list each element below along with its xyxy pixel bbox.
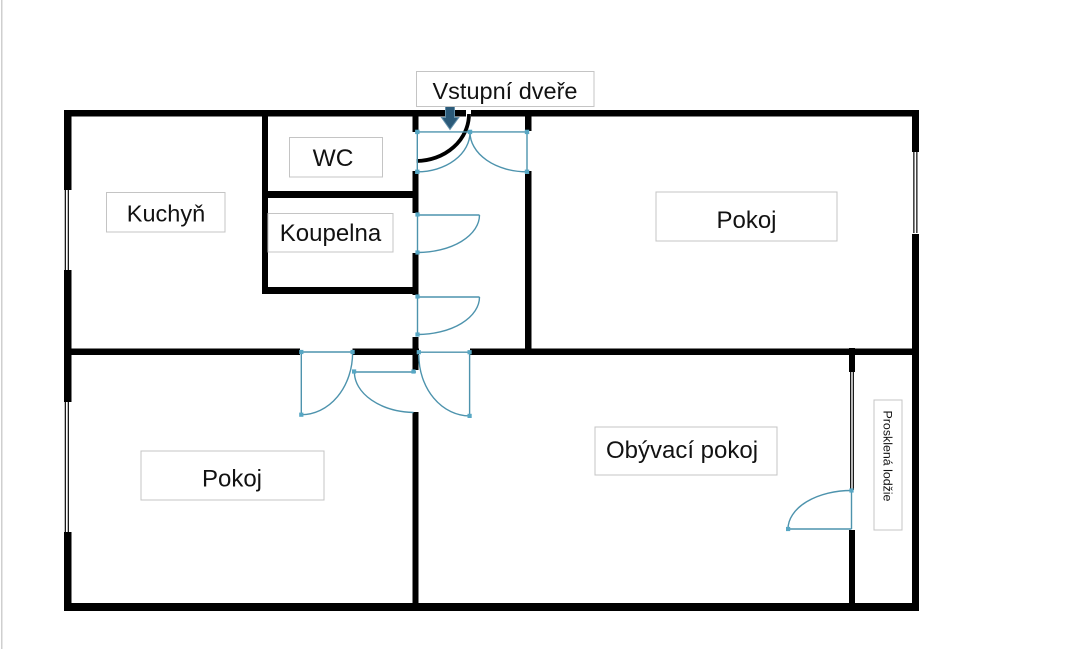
svg-text:Koupelna: Koupelna xyxy=(280,220,382,247)
svg-text:Pokoj: Pokoj xyxy=(716,207,776,234)
svg-text:Prosklená lodžie: Prosklená lodžie xyxy=(881,411,895,502)
svg-text:Obývací pokoj: Obývací pokoj xyxy=(606,437,758,464)
svg-text:Pokoj: Pokoj xyxy=(202,466,262,493)
svg-text:Kuchyň: Kuchyň xyxy=(127,201,205,227)
svg-text:Vstupní dveře: Vstupní dveře xyxy=(432,78,577,104)
svg-text:WC: WC xyxy=(313,145,354,172)
